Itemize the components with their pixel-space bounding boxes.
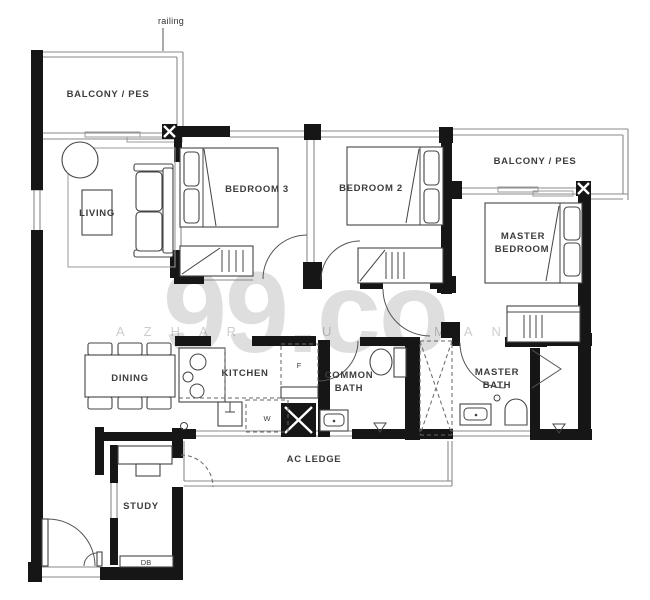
toilet xyxy=(394,348,406,377)
room-label-bedroom3: BEDROOM 3 xyxy=(225,184,289,195)
db-label: DB xyxy=(141,558,151,567)
room-label-study: STUDY xyxy=(123,501,159,512)
room-label-master-bedroom-1: MASTER xyxy=(501,231,545,242)
room-label-balcony-left: BALCONY / PES xyxy=(67,89,150,100)
master-wardrobe xyxy=(507,306,580,342)
floor-plan-svg: 99.co AZHAR U MAN xyxy=(0,0,650,600)
watermark-letters-mid: U xyxy=(322,324,350,339)
room-label-ac-ledge: AC LEDGE xyxy=(287,454,342,465)
room-label-master-bath-1: MASTER xyxy=(475,367,519,378)
bedroom3-wardrobe xyxy=(180,246,253,276)
toilet xyxy=(505,399,527,425)
room-label-master-bedroom-2: BEDROOM xyxy=(495,244,550,255)
room-label-dining: DINING xyxy=(111,373,148,384)
bedroom2-wardrobe xyxy=(358,248,443,283)
master-bed xyxy=(485,203,582,283)
floor-plan-page: 99.co AZHAR U MAN xyxy=(0,0,650,600)
washer-label: W xyxy=(263,414,271,423)
study-desk xyxy=(118,446,172,476)
living-round-table xyxy=(62,142,98,178)
kitchen-shaft xyxy=(281,403,316,437)
room-label-kitchen: KITCHEN xyxy=(221,368,268,379)
master-bath-fixtures xyxy=(460,395,565,433)
fridge-label: F xyxy=(297,361,302,370)
room-label-living: LIVING xyxy=(79,208,115,219)
room-label-balcony-right: BALCONY / PES xyxy=(494,156,577,167)
room-label-master-bath-2: BATH xyxy=(483,380,511,391)
room-label-common-bath-2: BATH xyxy=(335,383,363,394)
sofa xyxy=(134,164,173,257)
main-entrance-door-leaf xyxy=(42,519,48,566)
railing-label: railing xyxy=(158,16,184,26)
room-label-bedroom2: BEDROOM 2 xyxy=(339,183,403,194)
room-label-common-bath-1: COMMON xyxy=(325,370,374,381)
